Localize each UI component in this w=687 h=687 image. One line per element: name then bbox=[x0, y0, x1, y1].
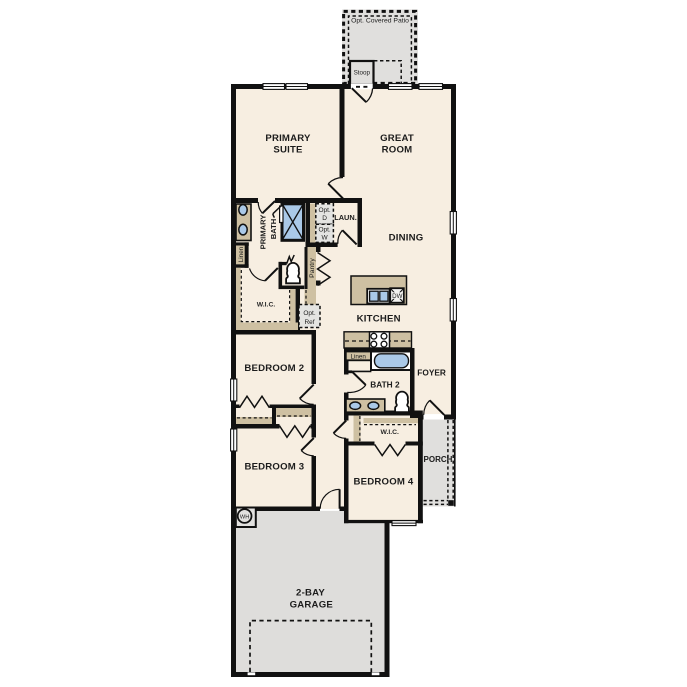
svg-text:Opt.: Opt. bbox=[303, 310, 315, 317]
svg-text:BEDROOM 4: BEDROOM 4 bbox=[354, 477, 414, 488]
svg-text:FOYER: FOYER bbox=[417, 368, 446, 378]
svg-text:Ref: Ref bbox=[304, 319, 314, 326]
svg-text:D: D bbox=[322, 215, 327, 222]
svg-text:PORCH: PORCH bbox=[424, 455, 453, 464]
svg-text:ROOM: ROOM bbox=[382, 145, 413, 156]
svg-text:GARAGE: GARAGE bbox=[290, 599, 334, 610]
svg-text:PRIMARY: PRIMARY bbox=[265, 133, 311, 144]
svg-text:DINING: DINING bbox=[389, 233, 424, 244]
svg-text:Linen: Linen bbox=[350, 354, 366, 361]
svg-text:BEDROOM 2: BEDROOM 2 bbox=[244, 363, 304, 374]
svg-text:GREAT: GREAT bbox=[380, 133, 414, 144]
svg-text:W.I.C.: W.I.C. bbox=[380, 429, 399, 436]
svg-text:PRIMARY: PRIMARY bbox=[259, 215, 268, 250]
svg-text:DW: DW bbox=[392, 293, 402, 300]
svg-text:SUITE: SUITE bbox=[273, 145, 303, 156]
svg-text:2-BAY: 2-BAY bbox=[296, 588, 325, 599]
svg-text:W.I.C.: W.I.C. bbox=[257, 301, 276, 308]
svg-text:W: W bbox=[322, 235, 329, 242]
svg-text:KITCHEN: KITCHEN bbox=[357, 313, 401, 324]
svg-text:Opt. Covered Patio: Opt. Covered Patio bbox=[351, 18, 409, 25]
svg-text:BEDROOM 3: BEDROOM 3 bbox=[244, 462, 304, 473]
svg-text:Stoop: Stoop bbox=[354, 70, 371, 77]
svg-text:Pantry: Pantry bbox=[309, 258, 316, 278]
svg-text:LAUN.: LAUN. bbox=[334, 213, 357, 222]
svg-text:BATH: BATH bbox=[269, 219, 278, 240]
svg-text:BATH 2: BATH 2 bbox=[370, 380, 400, 390]
svg-text:Linen: Linen bbox=[238, 246, 245, 262]
svg-text:WH: WH bbox=[240, 514, 249, 520]
svg-text:Opt.: Opt. bbox=[318, 227, 330, 234]
svg-text:Opt.: Opt. bbox=[318, 207, 330, 214]
